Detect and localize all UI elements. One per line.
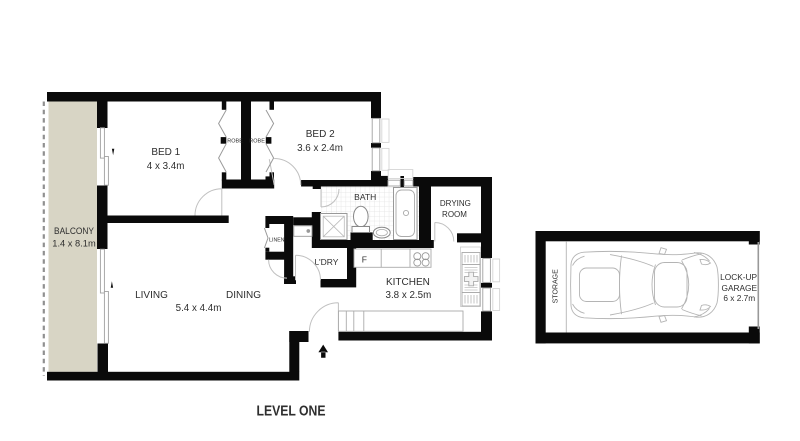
svg-text:6 x 2.7m: 6 x 2.7m [723, 293, 755, 303]
svg-text:1.4 x 8.1m: 1.4 x 8.1m [52, 238, 96, 248]
svg-text:ROBE: ROBE [227, 139, 243, 145]
svg-text:BED 1: BED 1 [151, 147, 180, 158]
svg-text:DRYING: DRYING [440, 199, 471, 208]
svg-text:STORAGE: STORAGE [553, 269, 560, 303]
svg-text:LEVEL ONE: LEVEL ONE [257, 402, 326, 419]
svg-text:BED 2: BED 2 [306, 129, 335, 140]
svg-text:LIVING: LIVING [135, 290, 168, 301]
svg-text:L'DRY: L'DRY [314, 257, 338, 267]
svg-text:5.4 x 4.4m: 5.4 x 4.4m [176, 303, 222, 314]
svg-text:LINEN: LINEN [269, 238, 285, 244]
svg-text:BALCONY: BALCONY [54, 226, 94, 236]
svg-text:3.8 x 2.5m: 3.8 x 2.5m [386, 290, 432, 301]
svg-text:ROBE: ROBE [249, 139, 265, 145]
svg-text:LOCK-UP: LOCK-UP [720, 272, 757, 282]
svg-text:GARAGE: GARAGE [722, 283, 758, 293]
svg-text:KITCHEN: KITCHEN [386, 277, 430, 288]
svg-text:DINING: DINING [226, 290, 261, 301]
svg-text:4 x 3.4m: 4 x 3.4m [147, 161, 185, 172]
svg-text:BATH: BATH [354, 192, 376, 202]
svg-text:3.6 x 2.4m: 3.6 x 2.4m [297, 143, 343, 154]
svg-text:F: F [362, 254, 367, 264]
svg-text:ROOM: ROOM [442, 210, 467, 219]
